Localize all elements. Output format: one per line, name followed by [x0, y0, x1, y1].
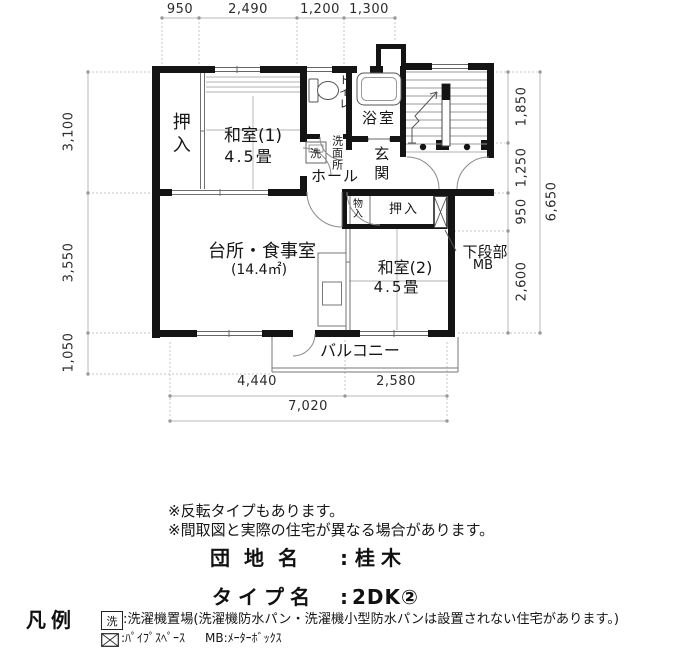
note-line1: ※反転タイプもあります。 — [168, 503, 344, 520]
dim-right-total-6650: 6,650 — [546, 171, 561, 231]
room-label-japanese-room2-size: 4.5畳 — [347, 279, 447, 296]
estate-type-colon: : — [340, 586, 348, 609]
room-label-kitchen: 台所・食事室 — [182, 242, 342, 263]
toilet-fixture — [309, 79, 339, 102]
legend-pipe-space-text: :ﾊﾟｲﾌﾟｽﾍﾟｰｽ — [121, 632, 185, 646]
legend-meter-box-text: MB:ﾒｰﾀｰﾎﾞｯｸｽ — [205, 632, 282, 646]
floorplan-page: 950 2,490 1,200 1,300 3,100 3,550 1,050 … — [0, 0, 700, 650]
legend-laundry-symbol: 洗 — [107, 613, 118, 629]
stair-up-arrow — [408, 92, 437, 143]
legend-laundry-text: :洗濯機置場(洗濯機防水パン・洗濯機小型防水パンは設置されない住宅があります。) — [123, 612, 619, 627]
dim-bottom-4440: 4,440 — [227, 375, 287, 390]
note-line2: ※間取図と実際の住宅が異なる場合があります。 — [168, 522, 494, 539]
room-label-bathroom: 浴室 — [352, 110, 406, 127]
dim-left-3100: 3,100 — [63, 101, 78, 161]
dim-top-1300: 1,300 — [339, 3, 399, 18]
dim-bottom-total-7020: 7,020 — [278, 400, 338, 415]
room-label-japanese-room1: 和室(1) — [203, 127, 303, 147]
room-label-japanese-room1-size: 4.5畳 — [199, 148, 299, 166]
estate-name-label: 団地名 — [210, 547, 312, 570]
legend-laundry-symbol-box: 洗 — [101, 611, 123, 630]
room-label-toilet: トイレ — [337, 74, 350, 120]
legend-title: 凡例 — [26, 609, 76, 632]
dim-right-950: 950 — [516, 181, 531, 241]
room-label-storage: 物入 — [350, 198, 362, 226]
dim-right-2600: 2,600 — [516, 251, 531, 311]
estate-name-colon: : — [340, 547, 348, 570]
bathtub-fixture — [357, 73, 401, 105]
room-label-entrance: 玄関 — [372, 146, 389, 192]
room-label-japanese-room2: 和室(2) — [355, 259, 455, 277]
dim-right-1850: 1,850 — [516, 76, 531, 136]
room-label-closet2: 押入 — [374, 203, 434, 218]
pipe-space-icon — [101, 633, 119, 647]
estate-type-label: タイプ名 — [212, 586, 316, 609]
pipe-space-box — [434, 196, 447, 228]
estate-name-value: 桂木 — [355, 547, 407, 570]
label-meter-box: MB — [455, 259, 511, 274]
room-label-hall: ホール — [305, 168, 365, 185]
dim-left-1050: 1,050 — [63, 322, 78, 382]
staircase — [406, 72, 487, 150]
room-label-closet1: 押入 — [169, 112, 190, 174]
room-label-kitchen-area: (14.4㎡) — [189, 262, 329, 278]
dim-left-3550: 3,550 — [63, 232, 78, 292]
room-label-balcony: バルコニー — [310, 342, 410, 360]
room-label-laundry: 洗 — [310, 148, 321, 161]
dim-bottom-2580: 2,580 — [366, 375, 426, 390]
dim-top-950: 950 — [155, 3, 205, 18]
dim-top-2490: 2,490 — [218, 3, 278, 18]
estate-type-value: 2DK② — [352, 586, 419, 609]
